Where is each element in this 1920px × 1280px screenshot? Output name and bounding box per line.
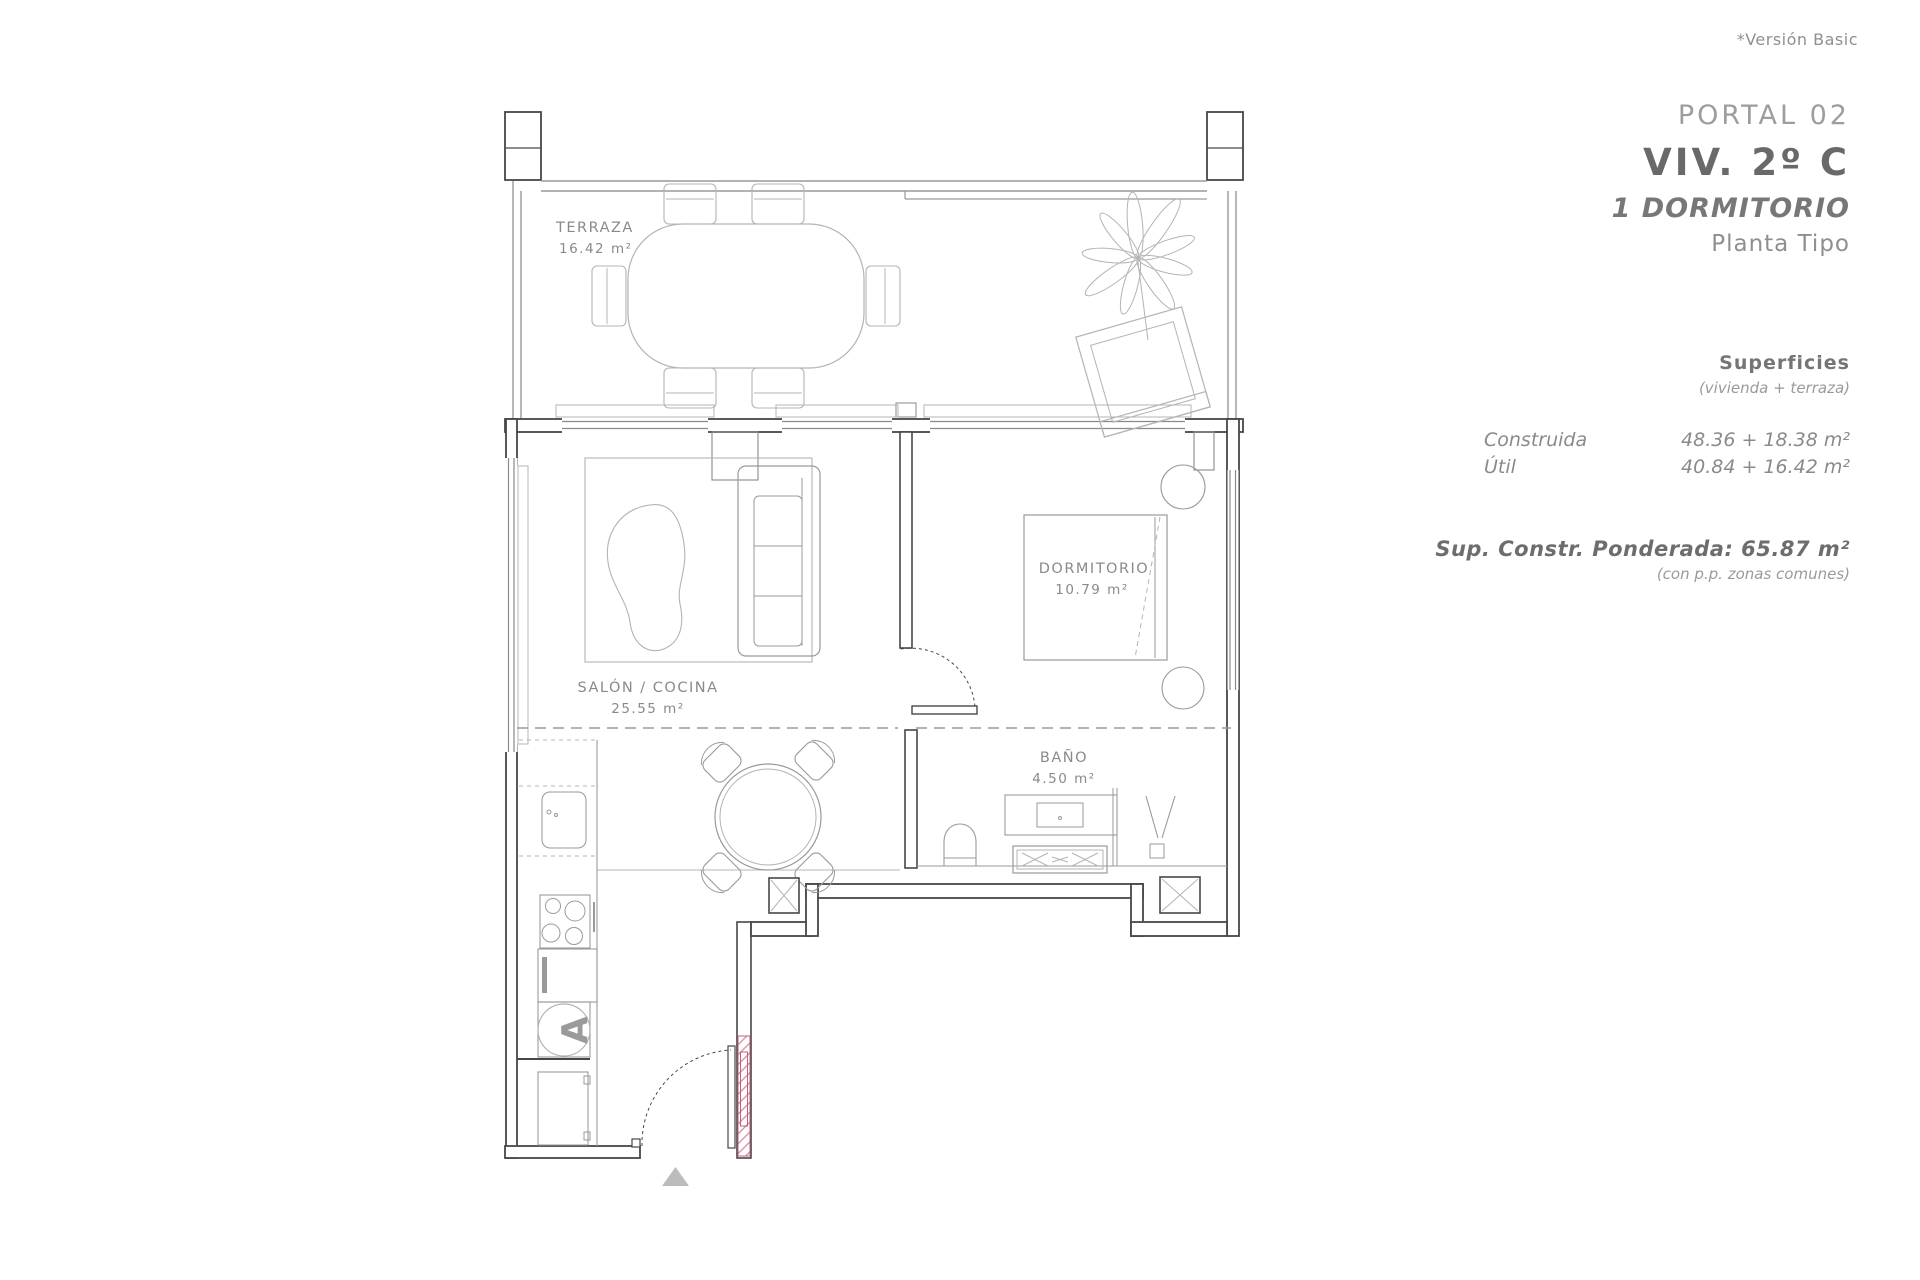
surface-row-util: Útil 40.84 + 16.42 m² <box>1484 454 1850 481</box>
dining-table <box>696 735 841 899</box>
kitchen-sink <box>542 792 586 848</box>
room-area-salon: 25.55 m² <box>611 701 685 717</box>
surfaces-table: Construida 48.36 + 18.38 m² Útil 40.84 +… <box>1484 427 1850 481</box>
bedroom-pier <box>1194 432 1214 470</box>
nightstand-bottom <box>1162 667 1204 709</box>
terrace-chairs <box>592 184 900 408</box>
kitchen: A <box>517 740 597 1146</box>
sofa <box>738 466 820 656</box>
version-note: *Versión Basic <box>1737 30 1858 49</box>
room-label-salon: SALÓN / COCINA <box>577 678 718 696</box>
terrace-furniture <box>592 184 1210 437</box>
window-bedroom <box>924 405 1191 434</box>
party-wall-hatch <box>738 1036 750 1156</box>
bedroom-count: 1 DORMITORIO <box>1390 193 1850 224</box>
weighted-area: Sup. Constr. Ponderada: 65.87 m² <box>1390 537 1850 561</box>
entrance-arrow-icon <box>662 1167 689 1186</box>
bathtub <box>1013 846 1107 873</box>
shaft-left <box>769 878 799 913</box>
windows <box>505 405 1239 752</box>
shaft-right <box>1160 877 1200 913</box>
surface-value: 40.84 + 16.42 m² <box>1681 454 1850 481</box>
appliance-letter: A <box>555 1016 596 1044</box>
terrace-pillar-left <box>505 112 541 180</box>
surface-row-construida: Construida 48.36 + 18.38 m² <box>1484 427 1850 454</box>
entrance-door <box>642 1046 735 1148</box>
partition-wall <box>900 432 912 648</box>
salon-furniture <box>585 458 840 898</box>
zone-dashed-line <box>517 728 1231 870</box>
room-label-bano: BAÑO <box>1040 749 1088 766</box>
room-labels: TERRAZA 16.42 m² SALÓN / COCINA 25.55 m²… <box>555 220 1149 787</box>
surface-value: 48.36 + 18.38 m² <box>1681 427 1850 454</box>
room-label-terraza: TERRAZA <box>555 220 634 236</box>
oven <box>538 949 597 1002</box>
toilet <box>944 824 976 866</box>
stove <box>540 895 594 948</box>
room-label-dormitorio: DORMITORIO <box>1039 561 1149 577</box>
washing-machine: A <box>538 1002 596 1057</box>
room-area-dormitorio: 10.79 m² <box>1055 582 1129 598</box>
room-area-bano: 4.50 m² <box>1032 771 1095 787</box>
floor-type: Planta Tipo <box>1390 231 1850 257</box>
unit-title: VIV. 2º C <box>1390 141 1850 184</box>
coffee-table-blob <box>607 505 684 651</box>
portal-title: PORTAL 02 <box>1390 100 1850 131</box>
bathroom-fixtures <box>917 788 1227 873</box>
bottom-step-wall <box>751 884 1227 936</box>
terrace-table <box>628 224 864 368</box>
surfaces-subheading: (vivienda + terraza) <box>1390 379 1850 397</box>
bathroom-wall <box>905 730 917 868</box>
hall-cabinet <box>538 1072 590 1145</box>
window-left-wall <box>505 458 529 752</box>
bedroom-door <box>901 648 977 714</box>
nightstand-top <box>1161 465 1205 509</box>
window-salon-2 <box>776 405 898 434</box>
title-block: PORTAL 02 VIV. 2º C 1 DORMITORIO Planta … <box>1390 100 1850 257</box>
facade-column <box>712 432 758 480</box>
surfaces-block: Superficies (vivienda + terraza) Constru… <box>1390 352 1850 583</box>
shower <box>1113 788 1175 866</box>
surfaces-heading: Superficies <box>1390 352 1850 374</box>
vanity-sink <box>1005 795 1117 835</box>
window-right-wall <box>1228 470 1239 690</box>
terrace-pillar-right <box>1207 112 1243 180</box>
window-salon <box>556 405 714 434</box>
rug <box>585 458 812 662</box>
surface-label: Construida <box>1484 427 1587 454</box>
bottom-wall <box>505 1146 640 1158</box>
room-area-terraza: 16.42 m² <box>559 241 633 257</box>
weighted-area-note: (con p.p. zonas comunes) <box>1390 565 1850 583</box>
surface-label: Útil <box>1484 454 1516 481</box>
plant <box>1081 192 1197 340</box>
